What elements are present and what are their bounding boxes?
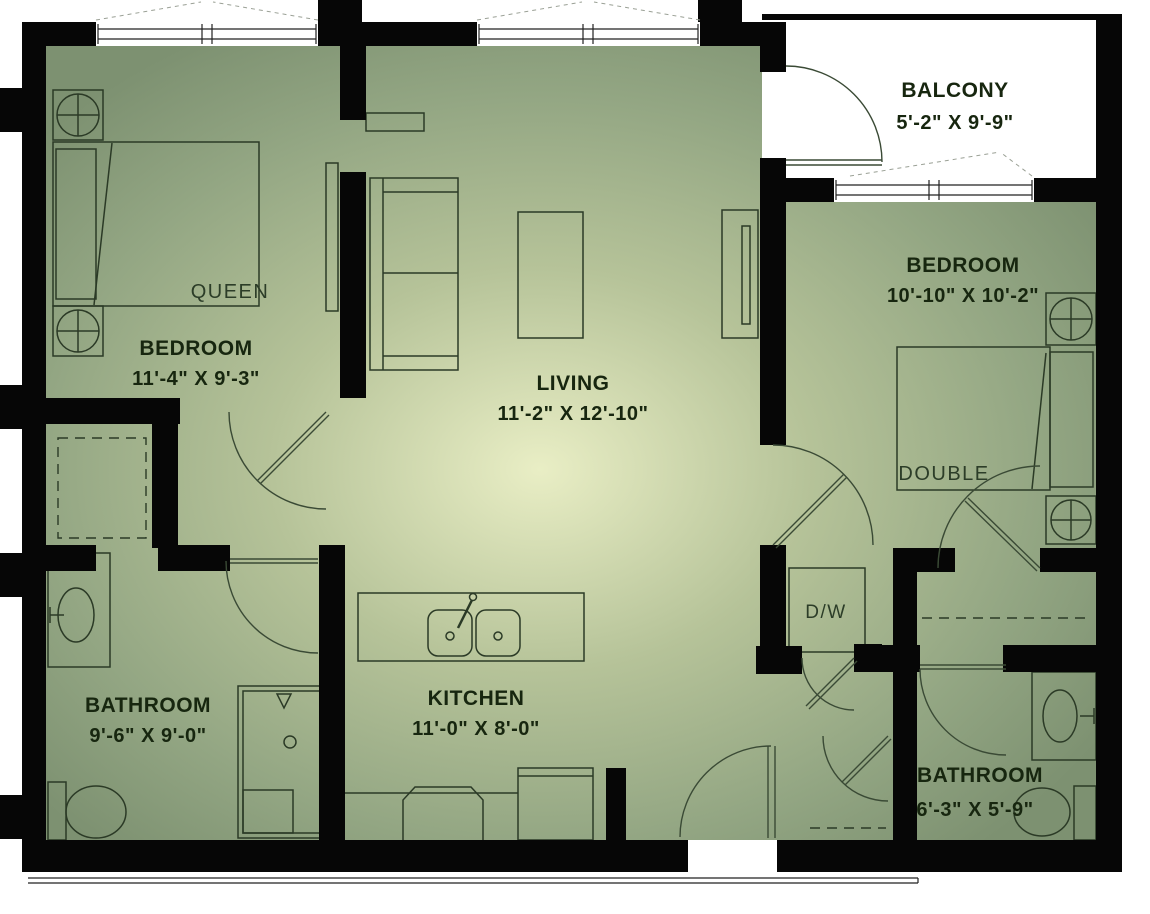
- bathroom2-label: BATHROOM: [917, 764, 1043, 787]
- exterior-nub: [0, 88, 22, 132]
- bedroom1-living-wall-b: [340, 172, 366, 398]
- exterior-nub: [318, 0, 362, 22]
- bathroom2-top-wall-b: [1003, 645, 1100, 672]
- exterior-nub: [0, 553, 22, 597]
- kitchen-label: KITCHEN: [428, 687, 525, 710]
- living-dims: 11'-2" X 12'-10": [497, 403, 648, 425]
- exterior-wall-right: [1096, 16, 1122, 872]
- kitchen-bathroom-wall: [319, 545, 345, 872]
- queen-bed-label: QUEEN: [191, 281, 270, 303]
- bedroom2-dims: 10'-10" X 10'-2": [887, 285, 1039, 307]
- exterior-nub: [0, 385, 22, 429]
- hall-wall-stub-a: [756, 646, 802, 674]
- bedroom2-window: [834, 178, 1034, 202]
- bedroom2-top-wall-left: [786, 178, 834, 202]
- living-label: LIVING: [536, 372, 609, 395]
- balcony-divider-lower: [760, 158, 786, 186]
- bedroom1-dims: 11'-4" X 9'-3": [132, 368, 260, 390]
- bathroom1-top-wall-a: [22, 545, 96, 571]
- bedroom2-label: BEDROOM: [906, 254, 1019, 277]
- bedroom1-living-wall-a: [340, 46, 366, 120]
- kitchen-dims: 11'-0" X 8'-0": [412, 718, 540, 740]
- closet1-wall: [152, 424, 178, 548]
- exterior-wall-bottom-left: [22, 840, 688, 872]
- double-bed-label: DOUBLE: [898, 463, 989, 485]
- bedroom1-window: [96, 22, 318, 46]
- balcony-rail-top: [762, 14, 1122, 20]
- kitchen-entry-stub: [606, 768, 626, 840]
- balcony-dims: 5'-2" X 9'-9": [896, 112, 1013, 134]
- bathroom1-dims: 9'-6" X 9'-0": [89, 725, 206, 747]
- bathroom2-left-wall: [893, 660, 917, 845]
- closet2-top-wall-b: [1040, 548, 1096, 572]
- bedroom2-top-wall-right: [1034, 178, 1096, 202]
- dw-nook-wall: [760, 545, 786, 660]
- exterior-nub: [698, 0, 742, 22]
- exterior-wall-left: [22, 22, 46, 872]
- bathroom1-top-wall-b: [158, 545, 230, 571]
- floor-plan: BALCONY 5'-2" X 9'-9" BEDROOM 11'-4" X 9…: [0, 0, 1150, 914]
- exterior-wall-bottom-right: [777, 840, 1122, 872]
- balcony-divider-upper: [760, 22, 786, 72]
- bathroom1-label: BATHROOM: [85, 694, 211, 717]
- dishwasher-label: D/W: [805, 602, 846, 623]
- living-window: [477, 22, 700, 46]
- floor-plan-page: BALCONY 5'-2" X 9'-9" BEDROOM 11'-4" X 9…: [0, 0, 1150, 914]
- bedroom1-bottom-wall: [22, 398, 180, 424]
- bedroom1-label: BEDROOM: [139, 337, 252, 360]
- closet2-top-wall-a: [893, 548, 955, 572]
- exterior-threshold-line: [28, 878, 918, 883]
- bathroom2-dims: 6'-3" X 5'-9": [916, 799, 1033, 821]
- exterior-nub: [0, 795, 22, 839]
- balcony-label: BALCONY: [901, 79, 1008, 102]
- bedroom2-left-wall: [760, 182, 786, 445]
